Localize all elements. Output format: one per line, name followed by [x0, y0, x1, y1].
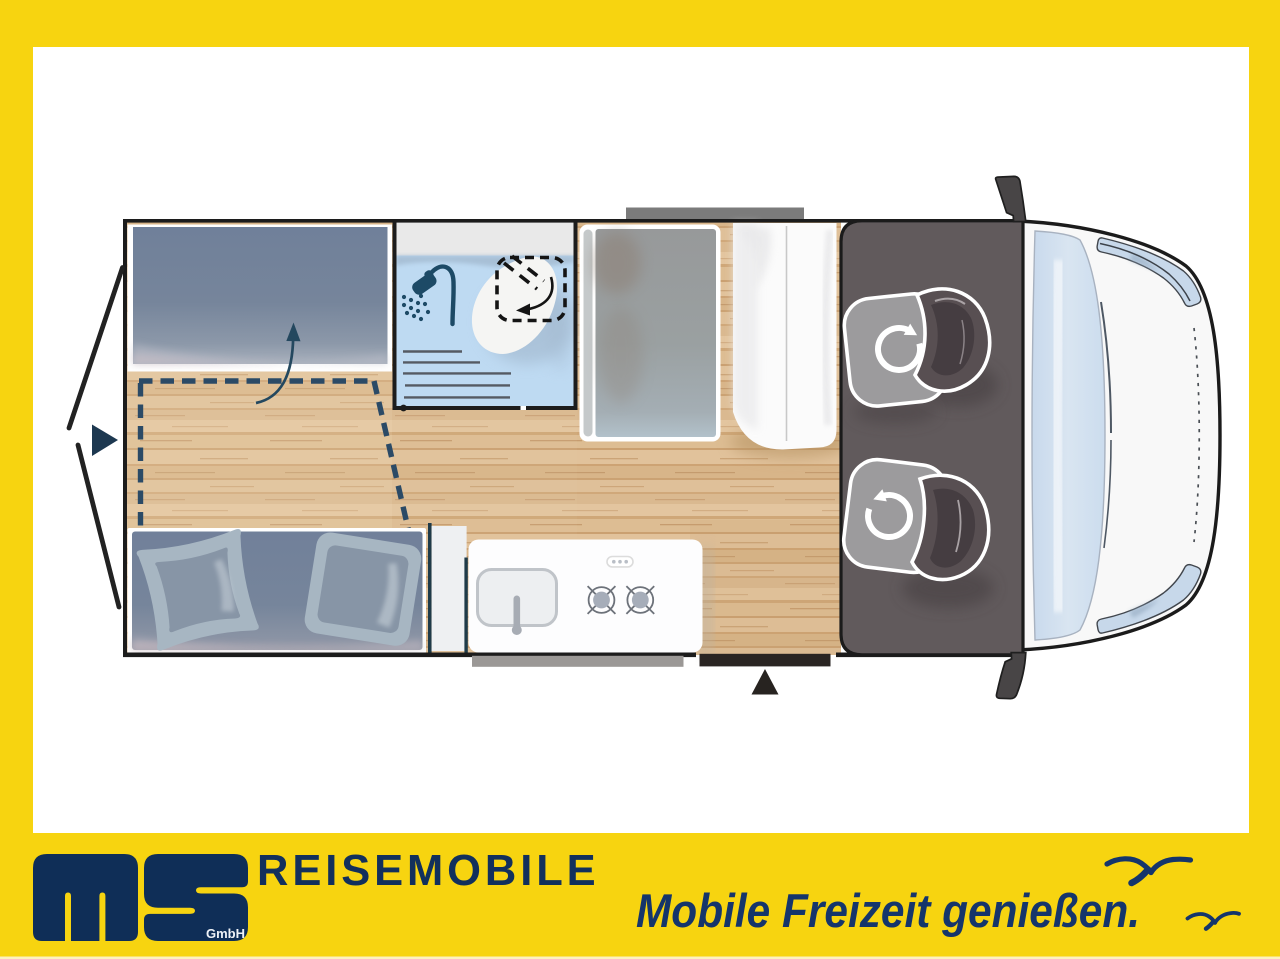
- svg-text:GmbH: GmbH: [206, 926, 245, 941]
- svg-text:Mobile Freizeit genießen.: Mobile Freizeit genießen.: [636, 884, 1140, 937]
- svg-text:REISEMOBILE: REISEMOBILE: [257, 847, 600, 895]
